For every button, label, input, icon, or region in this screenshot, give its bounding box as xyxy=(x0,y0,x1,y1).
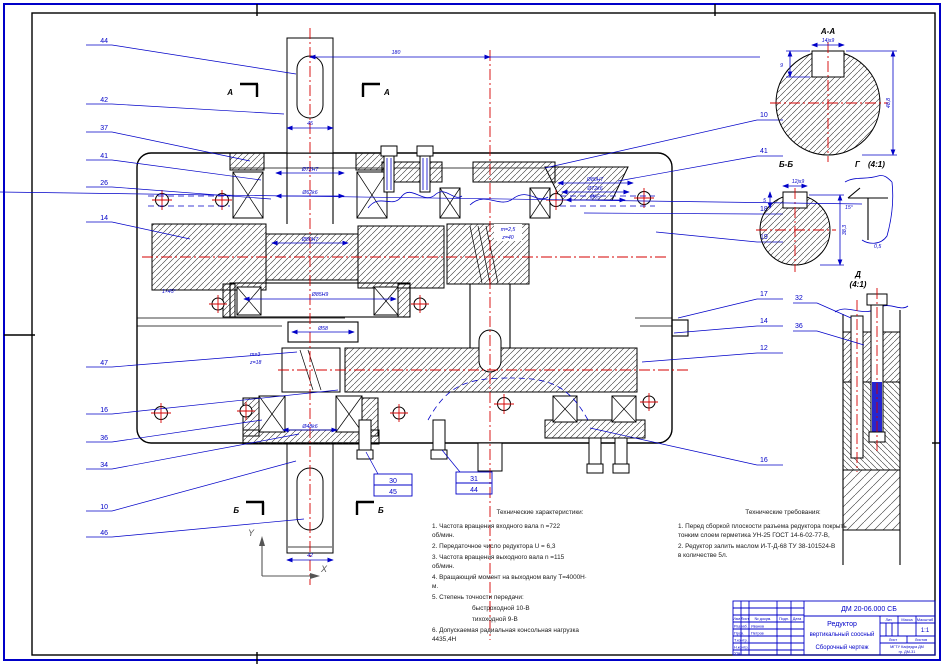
izm-header: Изм. xyxy=(733,617,741,621)
boxed-callout: 45 xyxy=(389,489,397,496)
tech-req-title: Технические требования: xyxy=(745,508,821,516)
hole xyxy=(212,190,232,210)
note-gear-module: m=2,5 xyxy=(501,227,516,233)
tech-char-line: быстроходной 10-В xyxy=(472,604,530,612)
dim-s4: Ø85H9 xyxy=(311,292,329,298)
bearing xyxy=(374,287,398,315)
section-b-right: Б xyxy=(378,506,384,515)
tech-char-line: 5. Степень точности передачи: xyxy=(432,594,524,601)
dim-g-angle: 15° xyxy=(845,205,853,211)
note-gear-teeth: z=40 xyxy=(501,235,514,241)
technical-characteristics: Технические характеристики: 1. Частота в… xyxy=(432,509,587,643)
prov-name: Петров xyxy=(751,632,764,636)
view-g-scale: (4:1) xyxy=(868,160,885,169)
org-line-1: МГТУ Кафедра ДМ xyxy=(890,645,924,649)
callouts-right: 10 41 18 19 17 14 12 16 xyxy=(545,112,783,465)
razrab-name: Иванов xyxy=(751,625,764,629)
callout: 12 xyxy=(760,345,768,352)
ndoc-header: № докум. xyxy=(755,617,772,621)
tech-char-line: 2. Передаточное число редуктора U = 6,3 xyxy=(432,543,556,550)
tech-char-line: 1. Частота вращения входного вала n =722 xyxy=(432,523,561,530)
section-a-right: А xyxy=(383,88,390,97)
callout: 10 xyxy=(100,504,108,511)
sheets-header: Листов xyxy=(915,638,927,642)
stud xyxy=(613,438,629,473)
callout: 32 xyxy=(795,295,803,302)
callout: 41 xyxy=(100,153,108,160)
note-pinion-teeth: z=18 xyxy=(249,360,262,366)
hole xyxy=(494,394,514,414)
tech-char-line: об/мин. xyxy=(432,562,454,570)
section-a-left: А xyxy=(226,88,233,97)
part-name-2: вертикальный соосный xyxy=(810,631,875,638)
podp-header: Подп. xyxy=(779,617,789,621)
bearing xyxy=(530,188,550,218)
tech-char-line: тихоходной 9-В xyxy=(472,615,518,623)
dim-g-radius: 0,5 xyxy=(874,244,881,250)
org-line-2: гр. ДМ-31 xyxy=(899,650,916,654)
reducer-assembly-drawing: А А Б Б 180 45 42 Ø72H7 Ø62k6 Ø80H7 Ø85H… xyxy=(0,0,944,664)
list-header: Лист xyxy=(741,617,750,621)
boxed-callout: 30 xyxy=(389,478,397,485)
scale-value: 1:1 xyxy=(921,628,930,634)
razrab-label: Разраб. xyxy=(734,625,748,629)
part-name: Редуктор xyxy=(827,621,857,628)
callout: 44 xyxy=(100,38,108,45)
tech-char-line: 4435,4Н xyxy=(432,636,457,643)
callout: 47 xyxy=(100,360,108,367)
mass-header: Масса xyxy=(901,618,913,622)
axis-x-label: X xyxy=(320,564,328,574)
detail-view-d: Д (4:1) 32 36 xyxy=(793,270,908,565)
callout: 14 xyxy=(760,318,768,325)
callout: 16 xyxy=(760,457,768,464)
view-aa-label: А-А xyxy=(820,27,835,36)
detail-stud xyxy=(851,300,863,472)
dim-aa-height: 48,8 xyxy=(886,98,892,108)
boxed-callout: 44 xyxy=(470,487,478,494)
callout: 16 xyxy=(100,407,108,414)
dim-s5: Ø58 xyxy=(317,326,328,332)
callout: 26 xyxy=(100,180,108,187)
callout: 42 xyxy=(100,97,108,104)
tech-char-line: 3. Частота вращения выходного вала n =11… xyxy=(432,554,565,561)
detail-view-bb: Б-Б 12js9 5 38,3 xyxy=(756,160,848,272)
hole xyxy=(152,190,172,210)
detail-view-aa: А-А 14js9 9 48,8 xyxy=(770,27,897,162)
dim-top-stub: 45 xyxy=(307,121,313,127)
tech-char-line: об/мин. xyxy=(432,531,454,539)
hole xyxy=(151,403,171,423)
stud xyxy=(587,438,603,473)
callout: 36 xyxy=(795,323,803,330)
doc-number: ДМ 20-06.000 СБ xyxy=(841,606,897,613)
boxed-callout: 31 xyxy=(470,476,478,483)
hole xyxy=(640,393,658,411)
dim-s1: Ø72H7 xyxy=(301,167,320,173)
callout: 14 xyxy=(100,215,108,222)
tech-req-line: 1. Перед сборкой плоскости разъема редук… xyxy=(678,522,847,530)
technical-requirements: Технические требования: 1. Перед сборкой… xyxy=(678,508,847,559)
bearings xyxy=(233,172,636,432)
centerlines xyxy=(142,28,690,640)
callout: 41 xyxy=(760,148,768,155)
dim-bottom-stub: 42 xyxy=(307,553,313,559)
section-b-left: Б xyxy=(233,506,239,515)
data-header: Дата xyxy=(793,617,802,621)
bearing xyxy=(259,396,285,432)
callout: 36 xyxy=(100,435,108,442)
tech-char-title: Технические характеристики: xyxy=(496,509,583,516)
tkontr-label: Т.контр. xyxy=(734,639,748,643)
tech-char-line: 4. Вращающий момент на выходном валу Т=4… xyxy=(432,573,587,581)
dim-bb-key-width: 12js9 xyxy=(792,179,805,185)
tech-req-line: в количестве 5л. xyxy=(678,552,728,559)
lit-header: Лит. xyxy=(886,618,893,622)
bearing xyxy=(357,172,387,218)
callout: 34 xyxy=(100,462,108,469)
utv-label: Утв. xyxy=(734,652,741,656)
title-block: ДМ 20-06.000 СБ Редуктор вертикальный со… xyxy=(733,601,935,656)
callout: 10 xyxy=(760,112,768,119)
note-chamfer: 1×45° xyxy=(162,289,176,295)
dim-s3: Ø80H7 xyxy=(301,237,320,243)
callout: 46 xyxy=(100,530,108,537)
view-g-label: Г xyxy=(855,160,861,169)
callout: 17 xyxy=(760,291,768,298)
view-d-scale: (4:1) xyxy=(850,280,867,289)
dim-bb-height: 38,3 xyxy=(842,225,848,235)
scale-header: Масштаб xyxy=(917,618,934,622)
drawing-sheet: А А Б Б 180 45 42 Ø72H7 Ø62k6 Ø80H7 Ø85H… xyxy=(0,0,944,664)
dim-c1: Ø80H7 xyxy=(586,177,605,183)
axis-y-label: Y xyxy=(248,528,255,538)
bearing xyxy=(336,396,362,432)
callout: 37 xyxy=(100,125,108,132)
view-bb-label: Б-Б xyxy=(779,160,793,169)
hole xyxy=(390,404,408,422)
tech-req-line: 2. Редуктор залить маслом И-Т-Д-68 ТУ 38… xyxy=(678,543,835,550)
hole xyxy=(411,295,429,313)
dim-c2: Ø72k6 xyxy=(586,186,602,192)
nkontr-label: Н.контр. xyxy=(734,646,749,650)
doc-type: Сборочный чертеж xyxy=(815,644,868,651)
prov-label: Пров. xyxy=(734,632,744,636)
sheet-header: Лист xyxy=(889,638,898,642)
tech-char-line: 6. Допускаемая радиальная консольная наг… xyxy=(432,627,579,634)
dim-aa-key-width: 14js9 xyxy=(822,38,835,44)
bearing-caps xyxy=(223,153,645,444)
boxed-callouts: 30 45 31 44 xyxy=(366,450,492,496)
dim-c3: Ø65 xyxy=(589,195,600,201)
dim-bb-key-depth: 5 xyxy=(763,198,766,204)
bearing xyxy=(440,188,460,218)
dim-aa-key-depth: 9 xyxy=(780,63,783,69)
tech-req-line: тонким слоем герметика УН-25 ГОСТ 14-6-0… xyxy=(678,532,830,539)
bearing xyxy=(612,396,636,422)
bearing xyxy=(237,287,261,315)
view-d-label: Д xyxy=(854,270,861,279)
dim-s6: Ø48k6 xyxy=(301,424,317,430)
dim-s2: Ø62k6 xyxy=(301,190,317,196)
hole xyxy=(634,188,654,208)
bearing xyxy=(553,396,577,422)
stud xyxy=(357,420,373,459)
dim-center-distance: 180 xyxy=(392,50,401,56)
tech-char-line: м. xyxy=(432,583,438,590)
